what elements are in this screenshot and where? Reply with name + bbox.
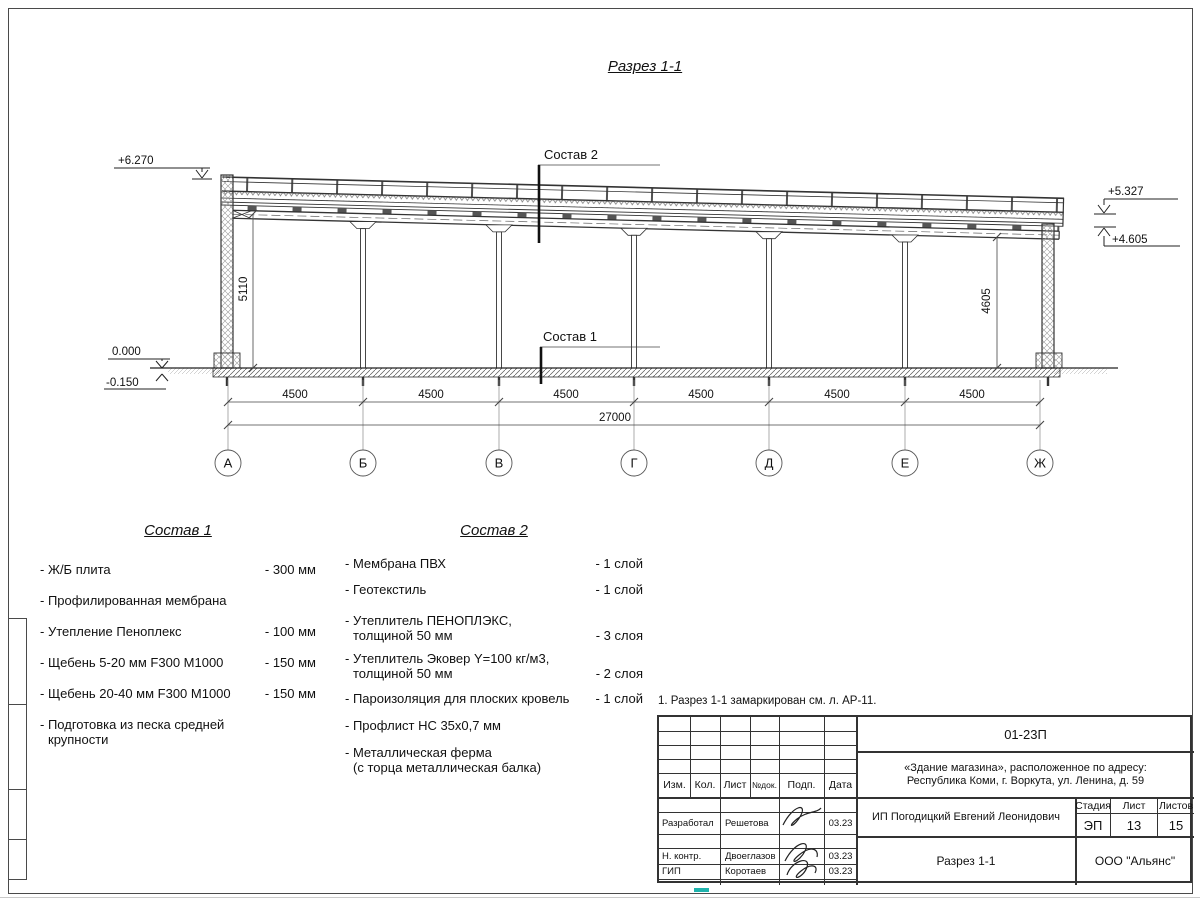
elev-right-lower: +4.605 [1112, 234, 1148, 246]
signatures [777, 799, 827, 883]
tb-col-izm: Изм. [659, 773, 690, 797]
tb-date: 03.23 [824, 848, 857, 864]
axis-label-a: А [224, 456, 233, 471]
bay-dim-4: 4500 [688, 389, 714, 401]
bay-dim-5: 4500 [824, 389, 850, 401]
bay-dim-6: 4500 [959, 389, 985, 401]
elevation-marks: +6.270 +5.327 +4.605 0.000 -0.150 [104, 155, 1180, 389]
tb-sheets-label: Листов [1158, 798, 1194, 813]
list-item: - Ж/Б плита - 300 мм [40, 546, 316, 577]
tb-object-line1: «Здание магазина», расположенное по адре… [904, 762, 1147, 775]
dim-right-height: 4605 [981, 288, 993, 314]
tb-sheet-label: Лист [1111, 798, 1157, 813]
bay-dim-3: 4500 [553, 389, 579, 401]
axis-label-e: Е [901, 456, 910, 471]
sheet-edge-line [0, 897, 1200, 898]
tb-client: ИП Погодицкий Евгений Леонидович [857, 798, 1075, 836]
list-item: - Утеплитель ПЕНОПЛЭКС, толщиной 50 мм -… [345, 597, 643, 643]
sostav2-block: Состав 2 - Мембрана ПВХ - 1 слой - Геоте… [345, 522, 643, 775]
tb-sheet-value: 13 [1111, 814, 1157, 836]
bay-dim-2: 4500 [418, 389, 444, 401]
axis-label-zh: Ж [1034, 456, 1046, 471]
drawing-note: 1. Разрез 1-1 замаркирован см. л. АР-11. [658, 695, 876, 707]
list-item: - Пароизоляция для плоских кровель - 1 с… [345, 681, 643, 706]
list-item: - Утеплитель Эковер Y=100 кг/м3, толщино… [345, 643, 643, 681]
list-item: - Профлист НС 35х0,7 мм [345, 706, 643, 733]
elev-zero: 0.000 [112, 346, 141, 358]
tb-company: ООО "Альянс" [1076, 837, 1194, 885]
tb-name: Двоеглазов [722, 848, 782, 864]
tb-col-list: Лист [720, 773, 750, 797]
axis-label-b: Б [359, 456, 368, 471]
tb-date: 03.23 [824, 812, 857, 834]
tb-stage-value: ЭП [1076, 814, 1110, 836]
left-margin-boxes [8, 618, 27, 880]
tb-sheet-title: Разрез 1-1 [857, 837, 1075, 885]
axis-bubbles: А Б В Г Д Е Ж [215, 450, 1053, 476]
list-item: - Утепление Пеноплекс - 100 мм [40, 608, 316, 639]
axis-lines [228, 380, 1040, 450]
tb-name: Решетова [722, 812, 782, 834]
total-dim: 27000 [599, 412, 631, 424]
tb-col-kol: Кол. [690, 773, 720, 797]
tb-role: Разработал [659, 812, 723, 834]
signature-1 [783, 808, 821, 826]
sostav1-title: Состав 1 [40, 522, 316, 546]
axis-label-d: Д [765, 456, 774, 471]
tb-col-data: Дата [824, 773, 857, 797]
sostav1-block: Состав 1 - Ж/Б плита - 300 мм - Профилир… [40, 522, 316, 747]
elev-right-upper: +5.327 [1108, 186, 1144, 198]
sostav2-title: Состав 2 [345, 522, 643, 546]
elev-top-left: +6.270 [118, 155, 154, 167]
list-item: - Профилированная мембрана [40, 577, 316, 608]
list-item: - Геотекстиль - 1 слой [345, 571, 643, 597]
signature-2 [785, 844, 817, 878]
tb-role: Н. контр. [659, 848, 723, 864]
callout-sostav1-label: Состав 1 [543, 329, 597, 344]
tb-object-line2: Республика Коми, г. Воркута, ул. Ленина,… [907, 775, 1144, 788]
list-item: - Щебень 5-20 мм F300 М1000 - 150 мм [40, 639, 316, 670]
tb-object: «Здание магазина», расположенное по адре… [857, 752, 1194, 797]
tb-col-dok: №док. [750, 773, 779, 797]
tb-stage-label: Стадия [1076, 798, 1110, 813]
title-block: Изм. Кол. Лист №док. Подп. Дата Разработ… [657, 715, 1192, 883]
list-item: - Металлическая ферма (с торца металличе… [345, 733, 643, 775]
tb-col-podp: Подп. [779, 773, 824, 797]
section-drawing: Состав 2 Состав 1 +6.270 +5.327 +4.605 0… [0, 0, 1200, 560]
elev-minus: -0.150 [106, 377, 139, 389]
dim-left-height: 5110 [238, 277, 250, 302]
tb-role: ГИП [659, 864, 723, 879]
bottom-edge-artifact [694, 888, 709, 892]
bay-dim-1: 4500 [282, 389, 308, 401]
tb-name: Коротаев [722, 864, 782, 879]
axis-label-g: Г [630, 456, 637, 471]
tb-date: 03.23 [824, 864, 857, 879]
list-item: - Мембрана ПВХ - 1 слой [345, 546, 643, 571]
list-item: - Щебень 20-40 мм F300 М1000 - 150 мм [40, 670, 316, 701]
drawing-sheet: Разрез 1-1 [0, 0, 1200, 900]
axis-label-v: В [495, 456, 504, 471]
tb-sheets-value: 15 [1158, 814, 1194, 836]
tb-doc-number: 01-23П [857, 717, 1194, 751]
callout-sostav2-label: Состав 2 [544, 147, 598, 162]
list-item: - Подготовка из песка средней крупности [40, 701, 316, 747]
